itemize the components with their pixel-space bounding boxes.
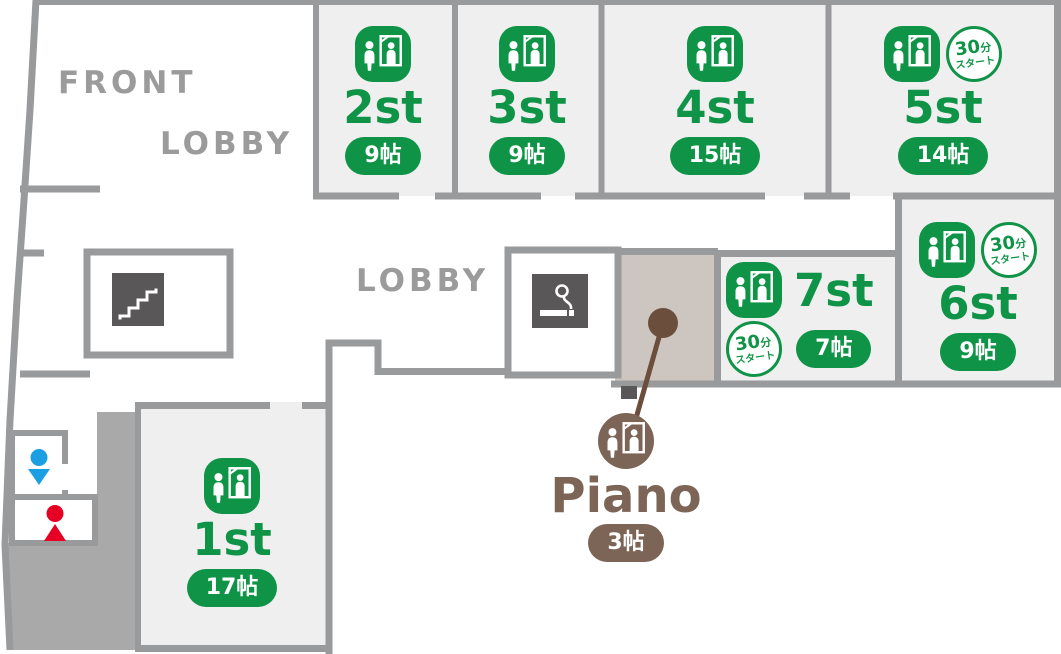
studio-icon (499, 26, 555, 82)
mens-toilet-icon (26, 449, 52, 485)
room-size-badge: 17帖 (187, 569, 278, 607)
room-name: Piano (550, 472, 701, 520)
studio-icon (919, 222, 975, 278)
room-label-2st[interactable]: 2st 9帖 (308, 26, 458, 175)
room-name: 4st (675, 85, 755, 130)
studio-icon (726, 262, 782, 318)
thirty-min-badge: 30分 スタート (981, 222, 1037, 278)
studio-icon (204, 458, 260, 514)
thirty-min-badge: 30分 スタート (726, 321, 782, 377)
thirty-min-badge: 30分 スタート (946, 26, 1002, 82)
room-size-badge: 7帖 (796, 330, 871, 368)
womens-toilet-icon (42, 505, 68, 541)
studio-icon (598, 413, 654, 469)
room-label-7st[interactable]: 7st 30分 スタート 7帖 (726, 262, 874, 377)
room-name: 3st (487, 85, 567, 130)
thirty-unit: 分 (1014, 237, 1027, 251)
room-name: 1st (192, 517, 272, 562)
room-name: 2st (343, 85, 423, 130)
room-label-4st[interactable]: 4st 15帖 (640, 26, 790, 175)
smoking-area-icon (532, 274, 588, 328)
lobby-mid-label: LOBBY (356, 266, 489, 297)
thirty-unit: 分 (979, 41, 992, 55)
stairs-icon (112, 273, 164, 326)
room-size-badge: 9帖 (940, 333, 1015, 371)
lobby-top-label: LOBBY (160, 129, 293, 160)
room-label-5st[interactable]: 30分 スタート 5st 14帖 (853, 26, 1033, 175)
room-size-badge: 3帖 (588, 524, 663, 562)
floor-map: FRONT LOBBY LOBBY 2st 9帖 3st 9帖 (0, 0, 1061, 654)
room-size-badge: 14帖 (898, 137, 989, 175)
stairs-glyph (112, 273, 164, 326)
room-label-piano[interactable]: Piano 3帖 (551, 413, 701, 562)
room-label-3st[interactable]: 3st 9帖 (452, 26, 602, 175)
cigarette-glyph (532, 274, 588, 328)
room-name: 5st (903, 85, 983, 130)
room-name: 6st (938, 281, 1018, 326)
front-label: FRONT (58, 68, 197, 99)
room-name: 7st (794, 268, 874, 313)
room-size-badge: 9帖 (489, 137, 564, 175)
room-label-1st[interactable]: 1st 17帖 (157, 458, 307, 607)
studio-icon (884, 26, 940, 82)
studio-icon (355, 26, 411, 82)
room-label-6st[interactable]: 30分 スタート 6st 9帖 (888, 222, 1061, 371)
toilet-door-gap (58, 464, 70, 490)
thirty-unit: 分 (759, 336, 772, 350)
studio-icon (687, 26, 743, 82)
room-size-badge: 9帖 (345, 137, 420, 175)
room-size-badge: 15帖 (670, 137, 761, 175)
